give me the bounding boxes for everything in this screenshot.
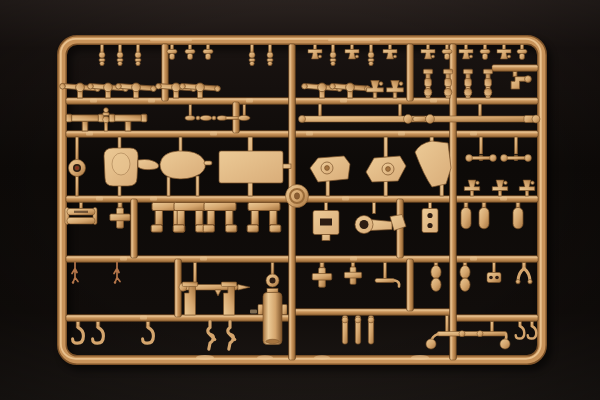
molded-part [342, 316, 348, 345]
gate-bump [411, 355, 429, 360]
part-number-tab [342, 197, 349, 201]
part-number-tab [120, 257, 127, 261]
runner [407, 44, 414, 101]
part-number-tab [148, 99, 155, 103]
part-number-tab [340, 99, 347, 103]
gate-bump [257, 355, 273, 359]
molded-part [423, 69, 432, 98]
part-number-tab [140, 316, 147, 320]
runner [407, 259, 414, 311]
gate-bump [314, 355, 330, 359]
part-number-tab [86, 132, 93, 136]
molded-part [501, 155, 532, 162]
molded-part [355, 316, 361, 345]
gate-bump [196, 355, 214, 360]
part-number-tab [500, 197, 507, 201]
embossed-marking [328, 39, 380, 42]
molded-part [463, 69, 472, 98]
part-number-tab [430, 99, 437, 103]
part-number-tab [200, 257, 207, 261]
part-number-tab [150, 197, 157, 201]
runner [66, 131, 538, 138]
part-number-tab [96, 197, 103, 201]
part-number-tab [250, 310, 257, 314]
runner [492, 65, 538, 72]
molded-part [483, 69, 492, 98]
part-number-tab [470, 257, 477, 261]
runner [66, 98, 538, 105]
part-number-tab [210, 132, 217, 136]
part-number-tab [398, 132, 405, 136]
photo-stage [0, 0, 600, 400]
molded-part [466, 155, 497, 162]
part-number-tab [470, 132, 477, 136]
center-junction-boss [286, 185, 309, 208]
part-number-tab [90, 99, 97, 103]
sprue-photo [0, 0, 600, 400]
runner [453, 315, 538, 322]
molded-part [368, 316, 374, 345]
runner [292, 309, 453, 316]
part-number-tab [350, 257, 357, 261]
part-number-tab [306, 132, 313, 136]
molded-part [443, 69, 452, 98]
embossed-marking [150, 39, 192, 42]
runner [131, 199, 138, 258]
part-number-tab [246, 99, 253, 103]
